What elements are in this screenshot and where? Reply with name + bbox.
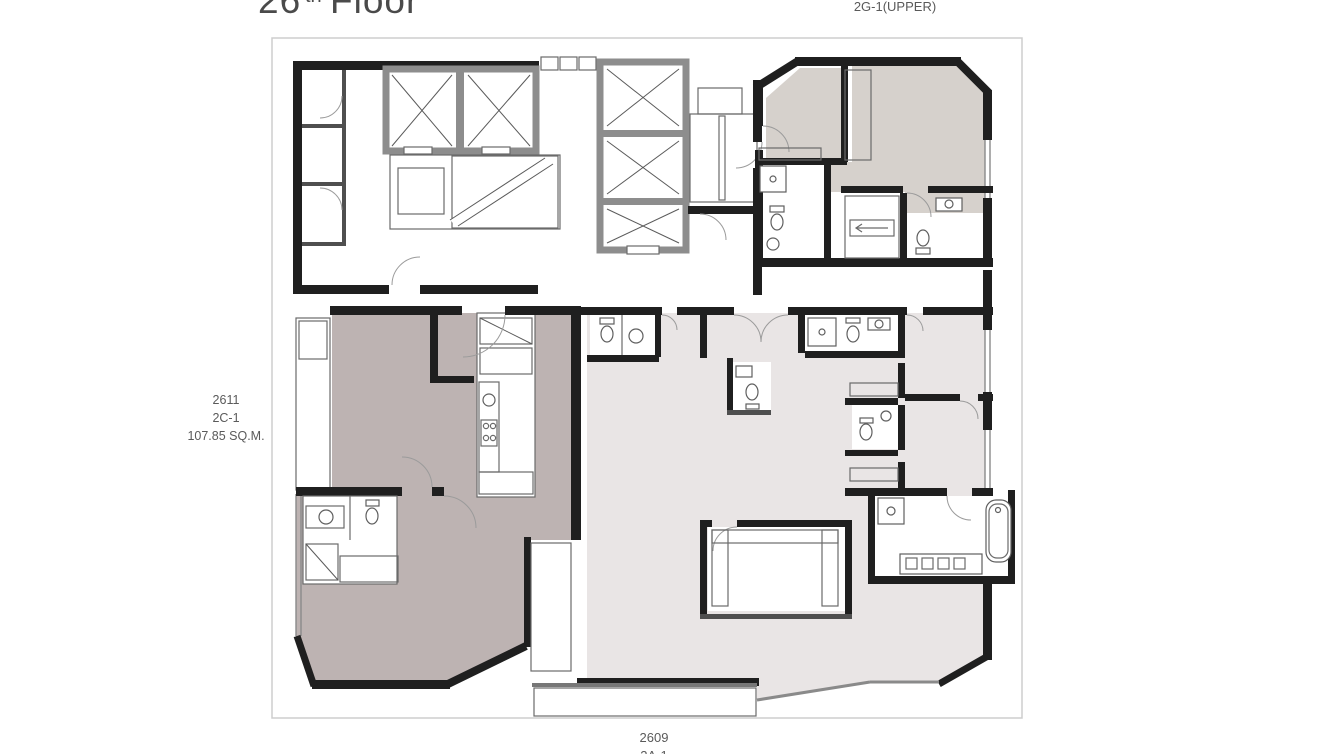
unit-2g1-upper	[755, 57, 993, 267]
door-arc	[392, 257, 420, 285]
toilet-icon	[860, 424, 872, 440]
sink-icon	[319, 510, 333, 524]
balcony-tiles	[534, 688, 756, 716]
service-core	[293, 57, 762, 295]
vent-shafts	[541, 57, 596, 70]
floor-title-superscript: th	[305, 0, 322, 7]
unit-2609	[532, 270, 1015, 716]
kitchen	[477, 313, 535, 497]
secondary-staircase	[688, 88, 757, 240]
toilet-icon	[771, 214, 783, 230]
sink-icon	[736, 366, 752, 377]
unit-label-2609-number: 2609	[640, 730, 669, 745]
elevator-bank-left	[386, 69, 536, 154]
bathroom-2611	[303, 496, 397, 584]
unit-label-2g1: 2G-1(UPPER)	[854, 0, 936, 14]
louver-shaft	[531, 543, 571, 671]
main-staircase	[390, 155, 560, 229]
sink-icon	[881, 411, 891, 421]
unit-2611	[296, 306, 581, 689]
core-bottom-wall	[293, 285, 389, 294]
elevator-bank-right	[600, 62, 686, 254]
bottom-balcony	[532, 685, 757, 716]
sink-icon	[767, 238, 779, 250]
floor-title-number: 26	[258, 0, 301, 21]
service-rooms	[302, 70, 346, 246]
floor-title-word: Floor	[330, 0, 419, 21]
toilet-icon	[601, 326, 613, 342]
unit-label-2611-area: 107.85 SQ.M.	[187, 429, 264, 443]
toilet-icon	[746, 384, 758, 400]
sink-counter	[900, 554, 982, 574]
sink-icon	[629, 329, 643, 343]
unit-label-2611-type: 2C-1	[212, 411, 239, 425]
toilet-icon	[366, 508, 378, 524]
unit-label-2611-number: 2611	[213, 393, 240, 407]
floor-plan-canvas: 26 th Floor 2G-1(UPPER) 2611 2C-1 107.85…	[0, 0, 1342, 754]
unit-label-2609-type-partial: 2A-1	[640, 748, 667, 754]
sink-icon	[483, 394, 495, 406]
core-left-wall	[293, 61, 302, 294]
bath-3	[852, 405, 898, 449]
toilet-icon	[917, 230, 929, 246]
toilet-icon	[847, 326, 859, 342]
